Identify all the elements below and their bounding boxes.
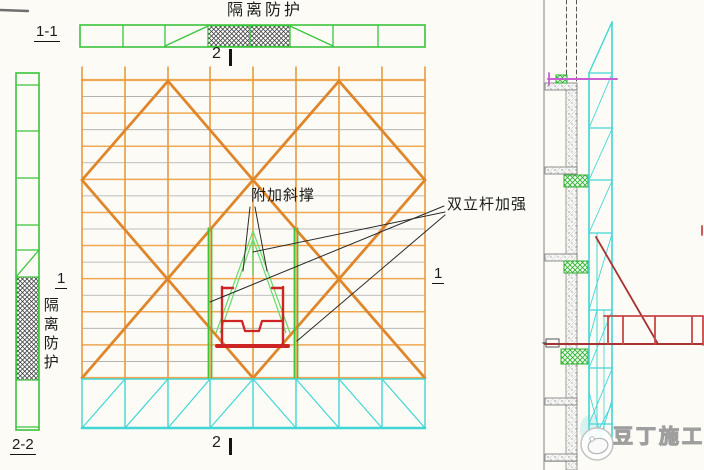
watermark-text: 豆丁施工 [613,427,704,448]
top-horizontal-truss-section [80,25,425,47]
label-additional-diagonal-brace: 附加斜撑 [251,188,315,204]
label-section-2-2: 2-2 [10,437,36,455]
annotation-leader-lines [210,206,445,341]
section-cut-tick-top [229,49,232,66]
watermark-logo-icon [580,415,613,460]
label-section-2-bottom: 2 [212,435,221,452]
label-top-isolation-protection: 隔离防护 [227,3,303,20]
scaffold-drawing-canvas: 隔离防护 1-1 2 1 1 隔离防护 2-2 附加斜撑 双立杆加强 2 豆丁施… [0,0,704,470]
label-section-1-1: 1-1 [34,24,60,42]
right-section-view [543,0,703,470]
label-double-pole-reinforcement: 双立杆加强 [447,197,527,213]
section-cut-tick-bottom [229,438,232,455]
label-section-1-left: 1 [55,271,67,289]
section-scaffold-truss [589,22,612,449]
scan-artifact-line [0,10,28,11]
bottom-cantilever-truss [82,379,425,428]
left-vertical-truss-section [16,73,39,430]
label-section-1-right: 1 [432,266,444,284]
label-section-2-top: 2 [212,46,221,63]
label-left-isolation-protection: 隔离防护 [42,297,58,373]
scaffold-elevation-and-section-drawing [0,0,704,470]
